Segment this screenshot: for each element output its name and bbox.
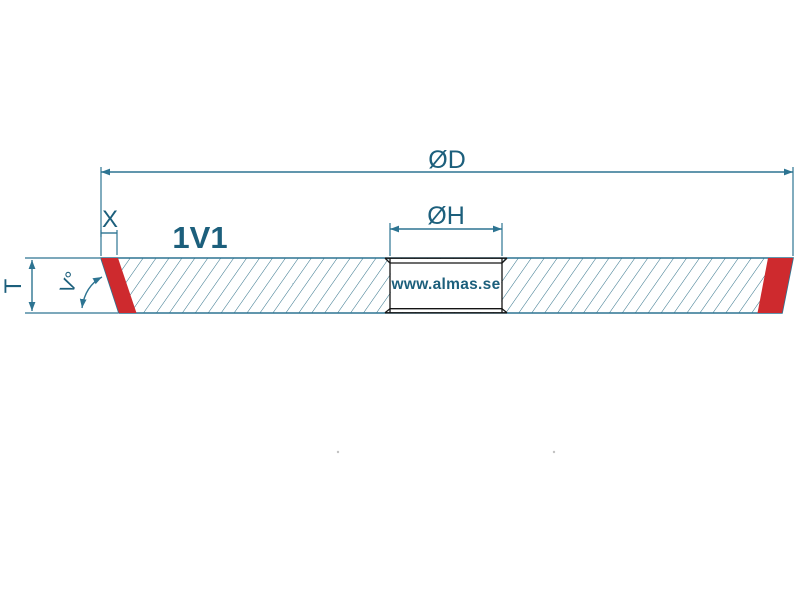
rim-width-label: X xyxy=(102,206,118,233)
artifact-dot-left xyxy=(337,451,339,453)
rim-angle-arc xyxy=(82,277,102,308)
outer-diameter-label: ØD xyxy=(428,146,466,174)
technical-drawing-canvas: ØD X ØH T V° 1V1 www.almas.se xyxy=(0,0,800,600)
rim-angle-label: V° xyxy=(56,269,84,297)
technical-drawing-page: ØD X ØH T V° 1V1 www.almas.se xyxy=(0,0,800,600)
hole-diameter-label: ØH xyxy=(427,202,465,230)
artifact-dot-right xyxy=(553,451,555,453)
watermark-text: www.almas.se xyxy=(391,276,501,293)
profile-type-label: 1V1 xyxy=(172,220,227,255)
thickness-label: T xyxy=(0,278,27,293)
